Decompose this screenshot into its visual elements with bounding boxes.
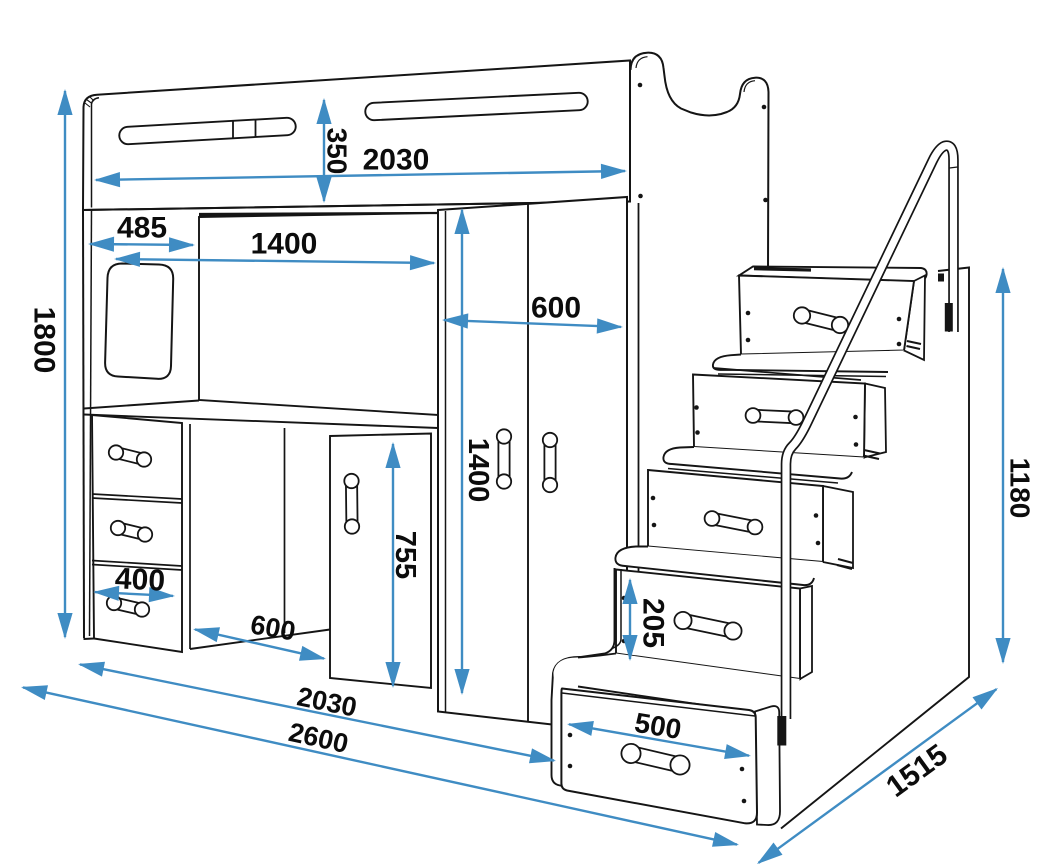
- svg-text:755: 755: [389, 531, 421, 579]
- svg-text:205: 205: [637, 598, 670, 648]
- svg-text:1400: 1400: [251, 228, 318, 261]
- svg-text:2030: 2030: [363, 144, 430, 177]
- svg-text:1800: 1800: [28, 307, 61, 374]
- svg-text:485: 485: [117, 212, 167, 245]
- svg-text:1400: 1400: [462, 438, 494, 503]
- svg-text:1180: 1180: [1005, 458, 1036, 519]
- svg-text:400: 400: [114, 562, 166, 598]
- svg-text:600: 600: [531, 292, 581, 325]
- svg-text:350: 350: [322, 128, 353, 175]
